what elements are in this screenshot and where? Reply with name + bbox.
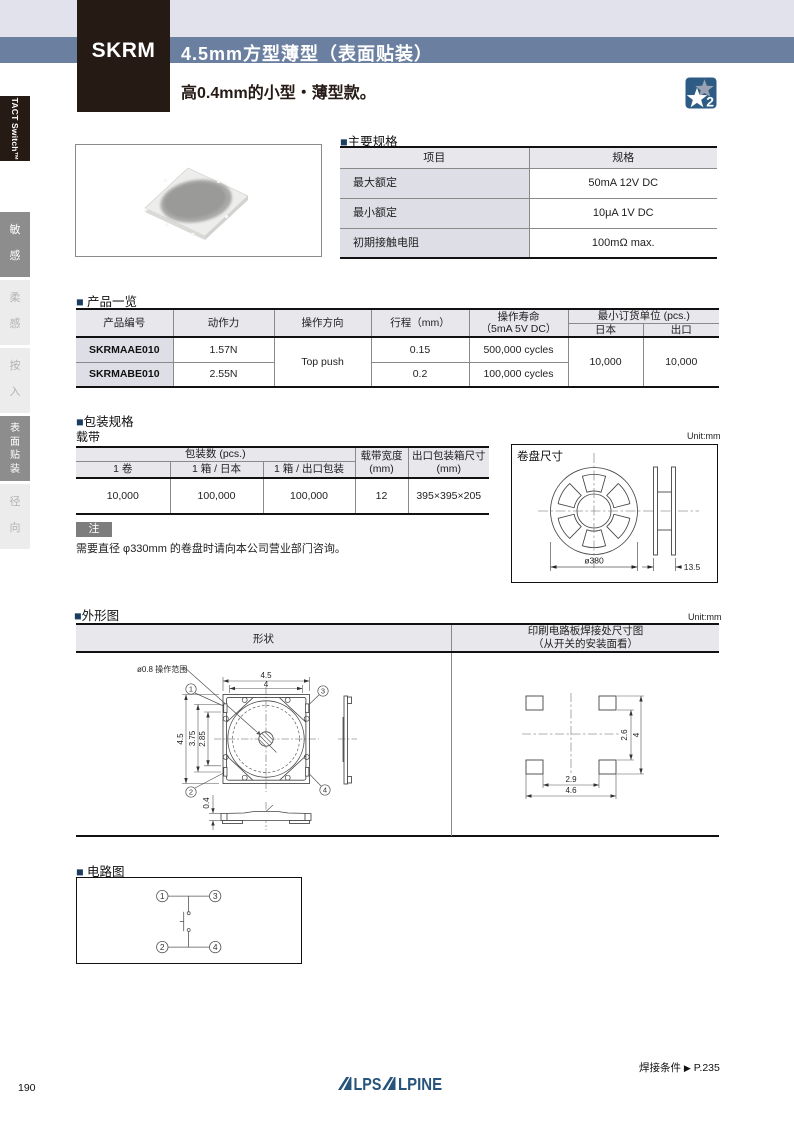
svg-text:1: 1	[160, 891, 165, 901]
svg-text:ø0.8 操作范围: ø0.8 操作范围	[137, 664, 187, 674]
svg-text:2.9: 2.9	[565, 775, 577, 784]
svg-text:2: 2	[160, 942, 165, 952]
svg-text:LPS: LPS	[354, 1077, 382, 1091]
svg-text:3: 3	[213, 891, 218, 901]
svg-text:13.5: 13.5	[684, 562, 701, 572]
svg-text:1: 1	[189, 685, 193, 694]
svg-text:4: 4	[323, 786, 327, 795]
svg-text:4.5: 4.5	[260, 671, 272, 680]
svg-text:2.6: 2.6	[620, 729, 629, 741]
svg-text:4: 4	[213, 942, 218, 952]
svg-text:4.6: 4.6	[565, 786, 577, 795]
svg-text:3.75: 3.75	[188, 730, 197, 746]
svg-text:4: 4	[632, 732, 641, 737]
svg-text:LPINE: LPINE	[398, 1077, 442, 1091]
svg-text:4.5: 4.5	[176, 733, 185, 745]
svg-text:ø380: ø380	[584, 556, 604, 566]
svg-text:2.85: 2.85	[198, 731, 207, 747]
svg-text:3: 3	[321, 687, 325, 696]
svg-text:2: 2	[706, 94, 714, 110]
svg-text:4: 4	[264, 680, 269, 689]
svg-text:2: 2	[189, 788, 193, 797]
svg-text:0.4: 0.4	[202, 797, 211, 809]
